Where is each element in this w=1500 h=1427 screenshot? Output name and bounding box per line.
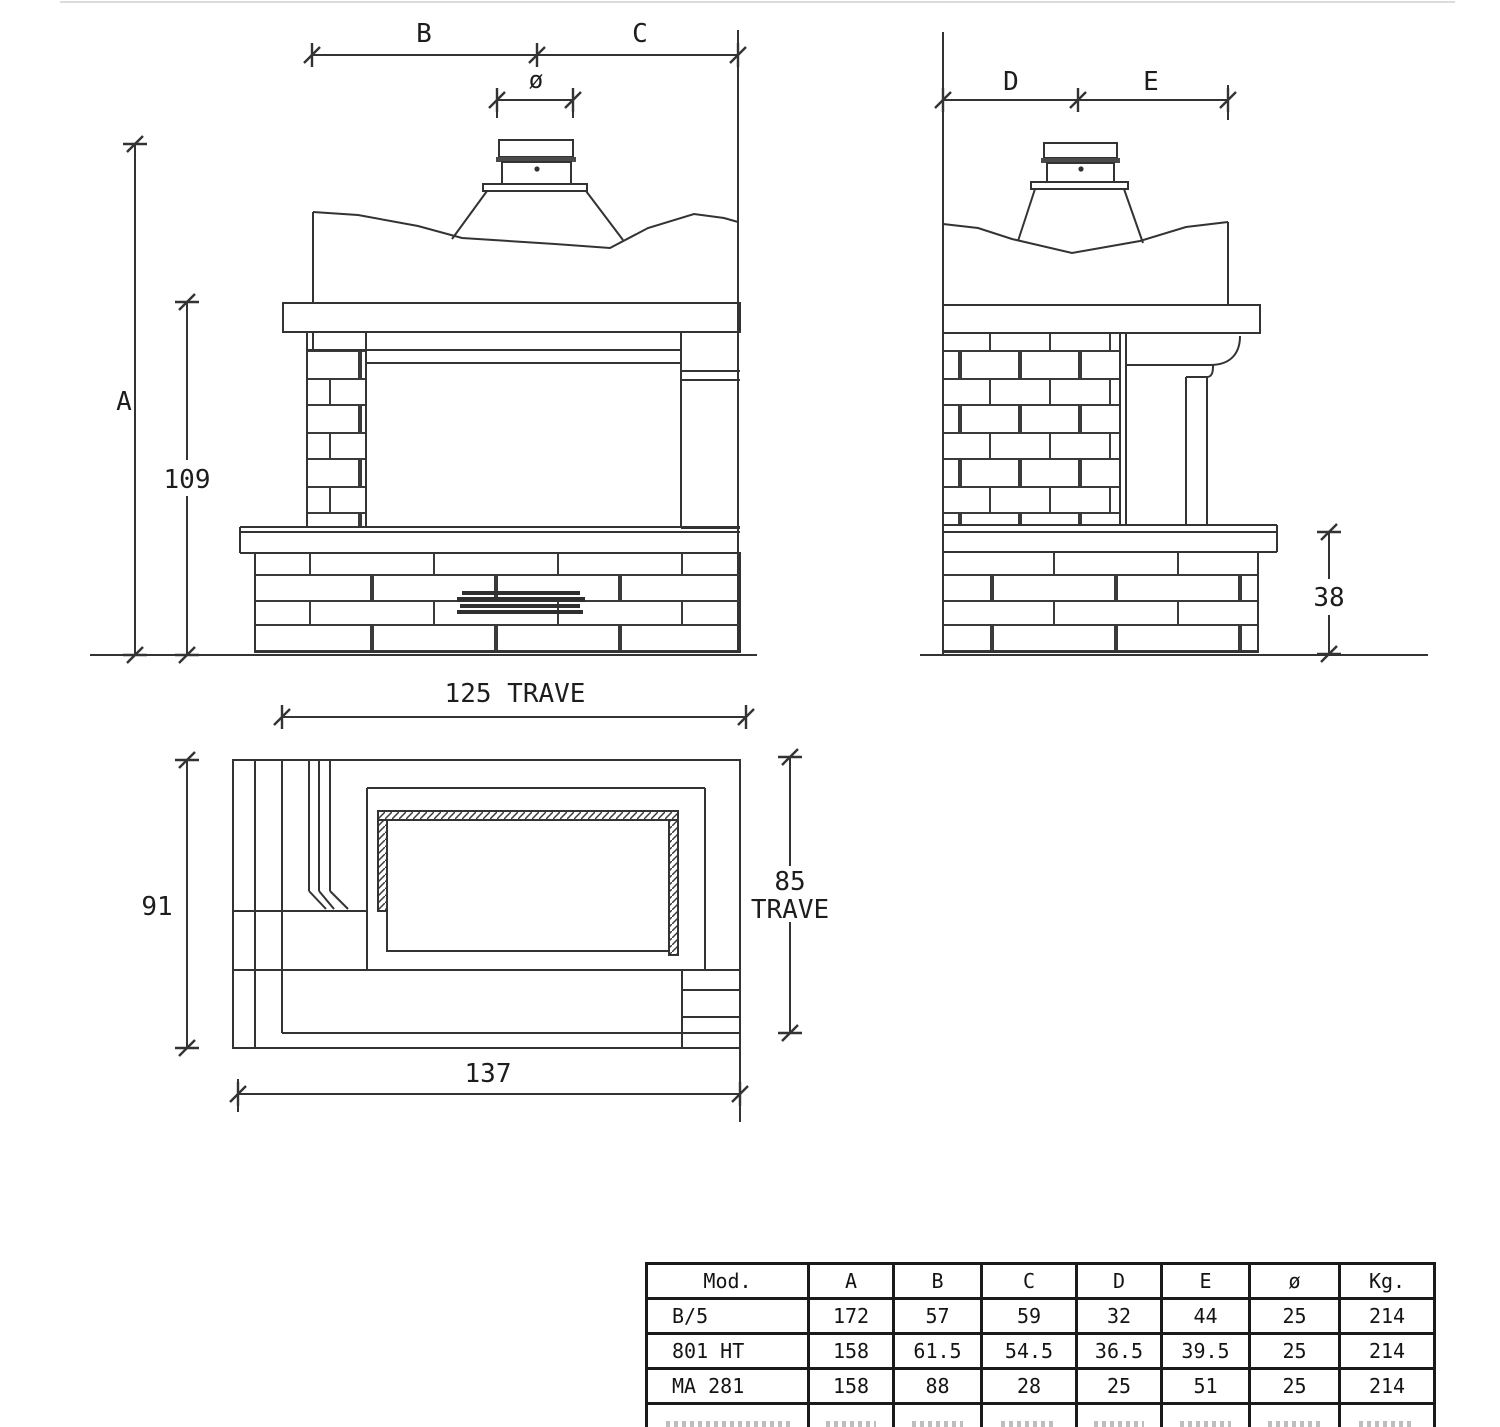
table-cell: B/5: [647, 1299, 809, 1334]
table-cell: 214: [1340, 1299, 1435, 1334]
table-header-cell: ø: [1250, 1264, 1340, 1299]
table-cell-clipped: [647, 1404, 809, 1427]
table-row: 801 HT 158 61.5 54.5 36.5 39.5 25 214: [647, 1334, 1435, 1369]
side-front-post: [1186, 377, 1207, 525]
table-header-cell: E: [1162, 1264, 1250, 1299]
table-header-cell: D: [1077, 1264, 1162, 1299]
dim-label-91: 91: [141, 892, 172, 922]
dim-label-85: 85: [774, 867, 805, 897]
front-brick-base: [255, 553, 740, 652]
table-header-cell: Kg.: [1340, 1264, 1435, 1299]
table-row: MA 281 158 88 28 25 51 25 214: [647, 1369, 1435, 1404]
table-cell-clipped: [1162, 1404, 1250, 1427]
side-corbel-profile: [1126, 336, 1240, 377]
label-backgrounds: [158, 460, 1351, 922]
table-cell: 36.5: [1077, 1334, 1162, 1369]
table-cell-clipped: [894, 1404, 982, 1427]
front-left-brick-column: [307, 350, 366, 527]
side-hood-top-edge: [943, 222, 1228, 253]
table-cell-clipped: [1340, 1404, 1435, 1427]
table-cell: 61.5: [894, 1334, 982, 1369]
plan-bench-base-edges: [233, 970, 740, 1048]
front-hood-top-edge: [313, 212, 738, 248]
dim-label-E: E: [1143, 67, 1159, 97]
table-cell: 214: [1340, 1369, 1435, 1404]
dim-label-C: C: [632, 19, 648, 49]
side-dim-de: [935, 85, 1236, 120]
dim-label-125-trave: 125 TRAVE: [445, 679, 586, 709]
table-header-cell: Mod.: [647, 1264, 809, 1299]
table-cell-clipped: [1077, 1404, 1162, 1427]
side-flue-collar: [1018, 143, 1143, 243]
front-flue-collar: [452, 140, 623, 240]
plan-firebox: [378, 811, 678, 955]
table-cell: 57: [894, 1299, 982, 1334]
dim-label-85-trave: TRAVE: [751, 895, 829, 925]
table-header-cell: C: [982, 1264, 1077, 1299]
table-cell-clipped: [809, 1404, 894, 1427]
table-cell: 44: [1162, 1299, 1250, 1334]
dim-label-A: A: [116, 387, 132, 417]
table-cell: 25: [1250, 1334, 1340, 1369]
table-cell: 158: [809, 1369, 894, 1404]
plan-jamb: [233, 760, 368, 911]
table-header-cell: A: [809, 1264, 894, 1299]
side-mantel-beam: [943, 305, 1260, 333]
dim-label-109: 109: [164, 465, 211, 495]
dim-label-D: D: [1003, 67, 1019, 97]
table-cell: 59: [982, 1299, 1077, 1334]
technical-drawing: B C ø A 109 D E 38 125 TRAVE 91 85 TRAVE…: [0, 0, 1500, 1427]
table-cell: 51: [1162, 1369, 1250, 1404]
table-row-clipped: [647, 1404, 1435, 1427]
table-cell: 158: [809, 1334, 894, 1369]
table-cell: 25: [1250, 1369, 1340, 1404]
front-dim-bc: [304, 43, 746, 67]
table-cell: 39.5: [1162, 1334, 1250, 1369]
plan-dim-91: [175, 752, 199, 1056]
fireplace-technical-drawing-page: B C ø A 109 D E 38 125 TRAVE 91 85 TRAVE…: [0, 0, 1500, 1427]
table-cell: 25: [1250, 1299, 1340, 1334]
table-cell: 801 HT: [647, 1334, 809, 1369]
dim-label-phi: ø: [529, 66, 543, 94]
table-cell: 54.5: [982, 1334, 1077, 1369]
table-cell: 32: [1077, 1299, 1162, 1334]
table-cell: 28: [982, 1369, 1077, 1404]
side-bench-slab: [943, 525, 1277, 552]
table-cell: 88: [894, 1369, 982, 1404]
dim-label-B: B: [416, 19, 432, 49]
table-row: B/5 172 57 59 32 44 25 214: [647, 1299, 1435, 1334]
side-view: [920, 32, 1428, 662]
dim-label-38: 38: [1313, 583, 1344, 613]
table-cell: MA 281: [647, 1369, 809, 1404]
front-view: [90, 30, 757, 663]
table-cell-clipped: [1250, 1404, 1340, 1427]
spec-table: Mod. A B C D E ø Kg. B/5 172 57 59 32 44…: [645, 1262, 1436, 1427]
table-cell: 25: [1077, 1369, 1162, 1404]
front-bench-slab: [240, 527, 740, 553]
dim-label-137: 137: [465, 1059, 512, 1089]
front-right-column: [681, 332, 740, 528]
table-cell: 214: [1340, 1334, 1435, 1369]
side-brick-base: [943, 552, 1258, 652]
side-brick-mass: [943, 333, 1120, 525]
front-mantel-beam: [283, 303, 740, 332]
table-header-row: Mod. A B C D E ø Kg.: [647, 1264, 1435, 1299]
table-header-cell: B: [894, 1264, 982, 1299]
table-cell: 172: [809, 1299, 894, 1334]
table-cell-clipped: [982, 1404, 1077, 1427]
